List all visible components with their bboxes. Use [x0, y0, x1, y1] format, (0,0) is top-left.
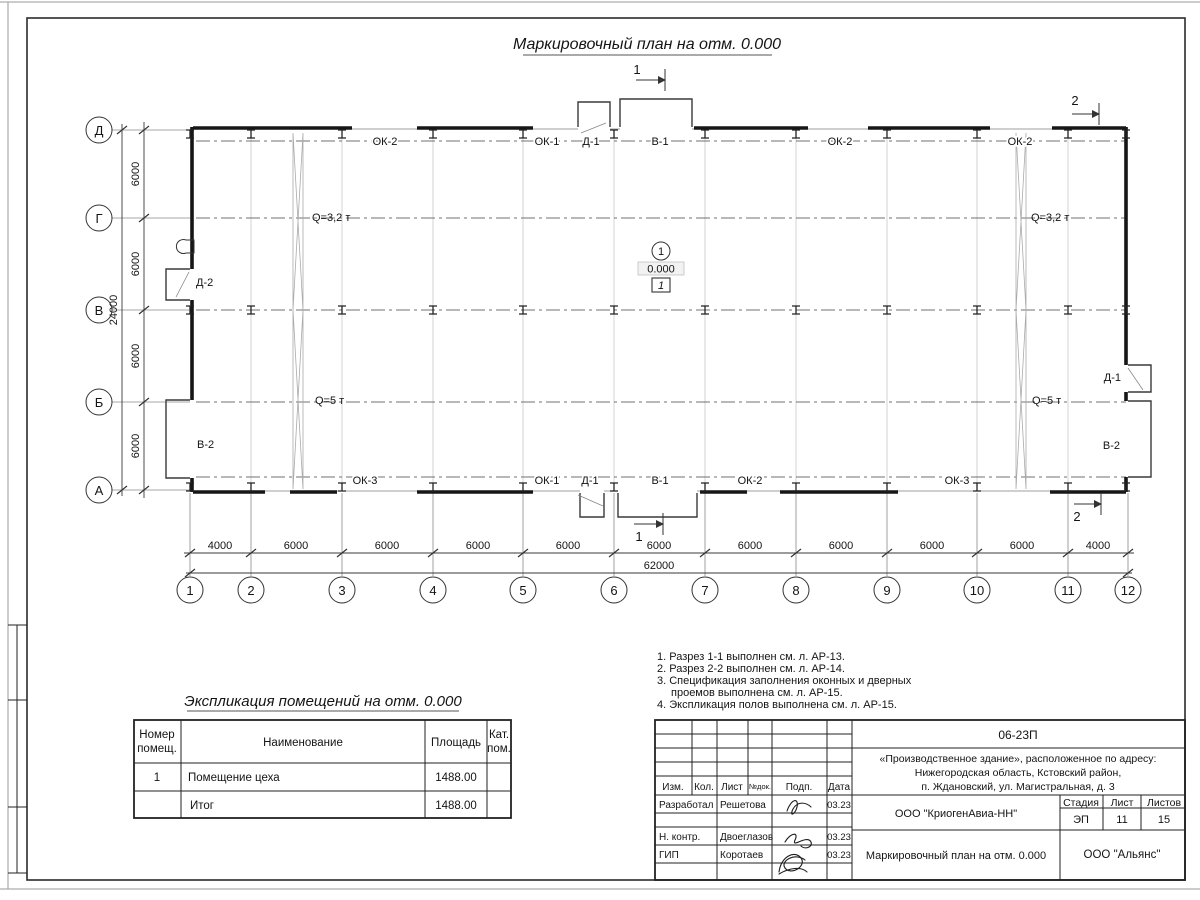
wall-labels-sides: Д-2 В-2 Д-1 В-2 — [196, 277, 1121, 452]
door-mark: Д-1 — [1104, 372, 1121, 384]
role: Разработал — [659, 799, 714, 811]
revision-header: Изм. Кол. Лист №док. Подп. Дата — [662, 782, 850, 793]
dim-label: 4000 — [208, 540, 232, 552]
door-mark: Д-1 — [582, 136, 599, 148]
section-mark-1: 1 — [635, 529, 642, 544]
door-mark: Д-2 — [196, 277, 213, 289]
org-name: ООО "Альянс" — [1084, 849, 1161, 861]
object-address: «Производственное здание», расположенное… — [880, 753, 1157, 765]
dim-label: 4000 — [1086, 540, 1110, 552]
svg-text:Изм.: Изм. — [662, 782, 683, 793]
dim-label: 6000 — [130, 434, 142, 458]
section-marks: 1 1 2 2 — [633, 62, 1102, 544]
svg-text:Б: Б — [95, 395, 104, 410]
svg-text:4: 4 — [429, 583, 436, 598]
role: ГИП — [659, 850, 679, 861]
table-row: 1 Помещение цеха 1488.00 — [154, 772, 477, 784]
col-header: Кат. — [489, 729, 509, 741]
grid-col-bubble: 2 — [238, 577, 264, 603]
crane-labels: Q=3,2 т Q=3,2 т Q=5 т Q=5 т — [312, 212, 1069, 407]
name: Решетова — [720, 800, 766, 811]
crane-bracing — [293, 133, 1026, 489]
grid-col-bubble: 6 — [601, 577, 627, 603]
signature — [787, 801, 811, 814]
svg-text:6: 6 — [610, 583, 617, 598]
svg-text:1: 1 — [186, 583, 193, 598]
gate-mark: В-2 — [1103, 440, 1120, 452]
window-mark: ОК-2 — [1008, 136, 1033, 148]
dim-label: 6000 — [647, 540, 671, 552]
cell-number: 1 — [154, 772, 160, 784]
dim-label: 6000 — [130, 252, 142, 276]
svg-text:В: В — [95, 303, 104, 318]
plan-drawing-canvas: Маркировочный план на отм. 0.000 — [0, 0, 1200, 900]
note-line: 4. Экспликация полов выполнена см. л. АР… — [657, 699, 897, 711]
cell-area: 1488.00 — [435, 772, 477, 784]
name: Двоеглазов — [720, 832, 773, 843]
svg-text:№док.: №док. — [749, 782, 771, 791]
col-header: Номер — [139, 729, 174, 741]
svg-text:8: 8 — [792, 583, 799, 598]
drawing-title: Маркировочный план на отм. 0.000 — [513, 36, 781, 55]
section-mark-2: 2 — [1071, 93, 1078, 108]
crane-capacity: Q=3,2 т — [312, 212, 350, 224]
page-title: Маркировочный план на отм. 0.000 — [513, 36, 781, 53]
attestation-strip — [8, 625, 27, 873]
svg-text:Д: Д — [95, 123, 104, 138]
svg-text:Подп.: Подп. — [786, 782, 813, 793]
room-table-title: Экспликация помещений на отм. 0.000 — [184, 693, 462, 710]
svg-text:Г: Г — [95, 211, 102, 226]
dimensions: 6000 6000 6000 6000 24000 4000 6000 6000… — [108, 122, 1134, 577]
note-line: проемов выполнена см. л. АР-15. — [671, 687, 843, 699]
grid-col-bubble: 1 — [177, 577, 203, 603]
dim-label: 6000 — [130, 344, 142, 368]
window-mark: ОК-1 — [535, 475, 560, 487]
svg-text:5: 5 — [519, 583, 526, 598]
date: 03.23 — [827, 850, 851, 861]
drawing-name: Маркировочный план на отм. 0.000 — [866, 850, 1046, 862]
grid-row-bubble: А — [86, 477, 112, 503]
note-line: 2. Разрез 2-2 выполнен см. л. АР-14. — [657, 663, 845, 675]
company-name: ООО "КриогенАвиа-НН" — [895, 808, 1017, 820]
grid-col-bubble: 12 — [1115, 577, 1141, 603]
grid-col-bubble: 5 — [510, 577, 536, 603]
grid-col-bubble: 9 — [874, 577, 900, 603]
doc-number: 06-23П — [998, 728, 1037, 742]
gate-mark: В-2 — [197, 439, 214, 451]
sheets-label: Листов — [1147, 797, 1182, 809]
window-mark: ОК-3 — [945, 475, 970, 487]
dim-label: 6000 — [130, 162, 142, 186]
crane-capacity: Q=3,2 т — [1031, 212, 1069, 224]
dim-label: 6000 — [738, 540, 762, 552]
note-line: 3. Спецификация заполнения оконных и две… — [657, 675, 912, 687]
svg-text:9: 9 — [883, 583, 890, 598]
date: 03.23 — [827, 832, 851, 843]
cell-name: Итог — [190, 800, 214, 812]
section-mark-1: 1 — [633, 62, 640, 77]
stage-value: ЭП — [1073, 814, 1089, 826]
grid-col-bubble: 8 — [783, 577, 809, 603]
sheets-value: 15 — [1158, 814, 1170, 826]
svg-text:10: 10 — [970, 583, 984, 598]
window-mark: ОК-2 — [738, 475, 763, 487]
svg-text:Лист: Лист — [721, 782, 743, 793]
object-address: п. Ждановский, ул. Магистральная, д. 3 — [921, 781, 1115, 793]
svg-text:11: 11 — [1061, 583, 1075, 598]
dim-label: 6000 — [829, 540, 853, 552]
cell-name: Помещение цеха — [188, 772, 280, 784]
svg-text:Кол.: Кол. — [694, 782, 714, 793]
dim-label: 6000 — [284, 540, 308, 552]
room-table: Экспликация помещений на отм. 0.000 Номе… — [134, 693, 511, 818]
name: Коротаев — [720, 850, 763, 861]
dim-label: 6000 — [375, 540, 399, 552]
col-header: пом. — [487, 743, 511, 755]
dim-label: 6000 — [466, 540, 490, 552]
svg-text:3: 3 — [338, 583, 345, 598]
svg-text:7: 7 — [701, 583, 708, 598]
gate-mark: В-1 — [651, 136, 668, 148]
col-header: помещ. — [137, 743, 177, 755]
grid-row-bubble: Г — [86, 205, 112, 231]
dim-label: 6000 — [920, 540, 944, 552]
room-number: 1 — [658, 246, 664, 258]
notes: 1. Разрез 1-1 выполнен см. л. АР-13. 2. … — [657, 651, 912, 711]
drawing-sheet: Маркировочный план на отм. 0.000 — [0, 0, 1200, 900]
svg-text:2: 2 — [247, 583, 254, 598]
room-elevation: 0.000 — [647, 264, 675, 276]
section-mark-2: 2 — [1073, 509, 1080, 524]
table-row: Итог 1488.00 — [190, 800, 477, 812]
col-header: Площадь — [431, 737, 481, 749]
svg-text:Дата: Дата — [828, 782, 851, 793]
grid-col-bubble: 11 — [1055, 577, 1081, 603]
window-mark: ОК-2 — [373, 136, 398, 148]
sheet-label: Лист — [1111, 797, 1134, 809]
grid-col-bubble: 4 — [420, 577, 446, 603]
entrance-porches — [166, 99, 1151, 517]
dim-label: 6000 — [1010, 540, 1034, 552]
svg-text:А: А — [95, 483, 104, 498]
window-mark: ОК-1 — [535, 136, 560, 148]
room-zone: 1 — [658, 280, 664, 292]
room-marker: 1 0.000 1 — [638, 242, 684, 292]
grid-row-bubble: Д — [86, 117, 112, 143]
date: 03.23 — [827, 800, 851, 811]
window-mark: ОК-2 — [828, 136, 853, 148]
stage-label: Стадия — [1063, 797, 1099, 809]
title-block: Изм. Кол. Лист №док. Подп. Дата Разработ… — [655, 720, 1185, 880]
column-symbols — [186, 130, 1130, 491]
window-mark: ОК-3 — [353, 475, 378, 487]
dim-total-label: 62000 — [644, 560, 675, 572]
grid-col-bubble: 10 — [964, 577, 990, 603]
sheet-value: 11 — [1116, 814, 1127, 826]
svg-text:12: 12 — [1121, 583, 1135, 598]
signature — [779, 854, 807, 874]
floor-plan: ОК-2 ОК-1 Д-1 В-1 ОК-2 ОК-2 ОК-3 ОК-1 Д-… — [112, 62, 1151, 576]
door-mark: Д-1 — [581, 475, 598, 487]
col-header: Наименование — [263, 737, 343, 749]
cell-area: 1488.00 — [435, 800, 477, 812]
crane-capacity: Q=5 т — [1032, 395, 1061, 407]
grid-col-bubble: 7 — [692, 577, 718, 603]
signature — [785, 834, 811, 848]
note-line: 1. Разрез 1-1 выполнен см. л. АР-13. — [657, 651, 845, 663]
grid-row-bubble: Б — [86, 389, 112, 415]
crane-capacity: Q=5 т — [315, 395, 344, 407]
grid-bubbles: Д Г В Б А 1 2 3 4 5 6 7 8 9 10 11 12 — [86, 117, 1141, 603]
gate-mark: В-1 — [651, 475, 668, 487]
dim-total-label: 24000 — [108, 295, 120, 326]
dim-label: 6000 — [556, 540, 580, 552]
grid-col-bubble: 3 — [329, 577, 355, 603]
object-address: Нижегородская область, Кстовский район, — [915, 767, 1122, 779]
role: Н. контр. — [659, 832, 700, 843]
